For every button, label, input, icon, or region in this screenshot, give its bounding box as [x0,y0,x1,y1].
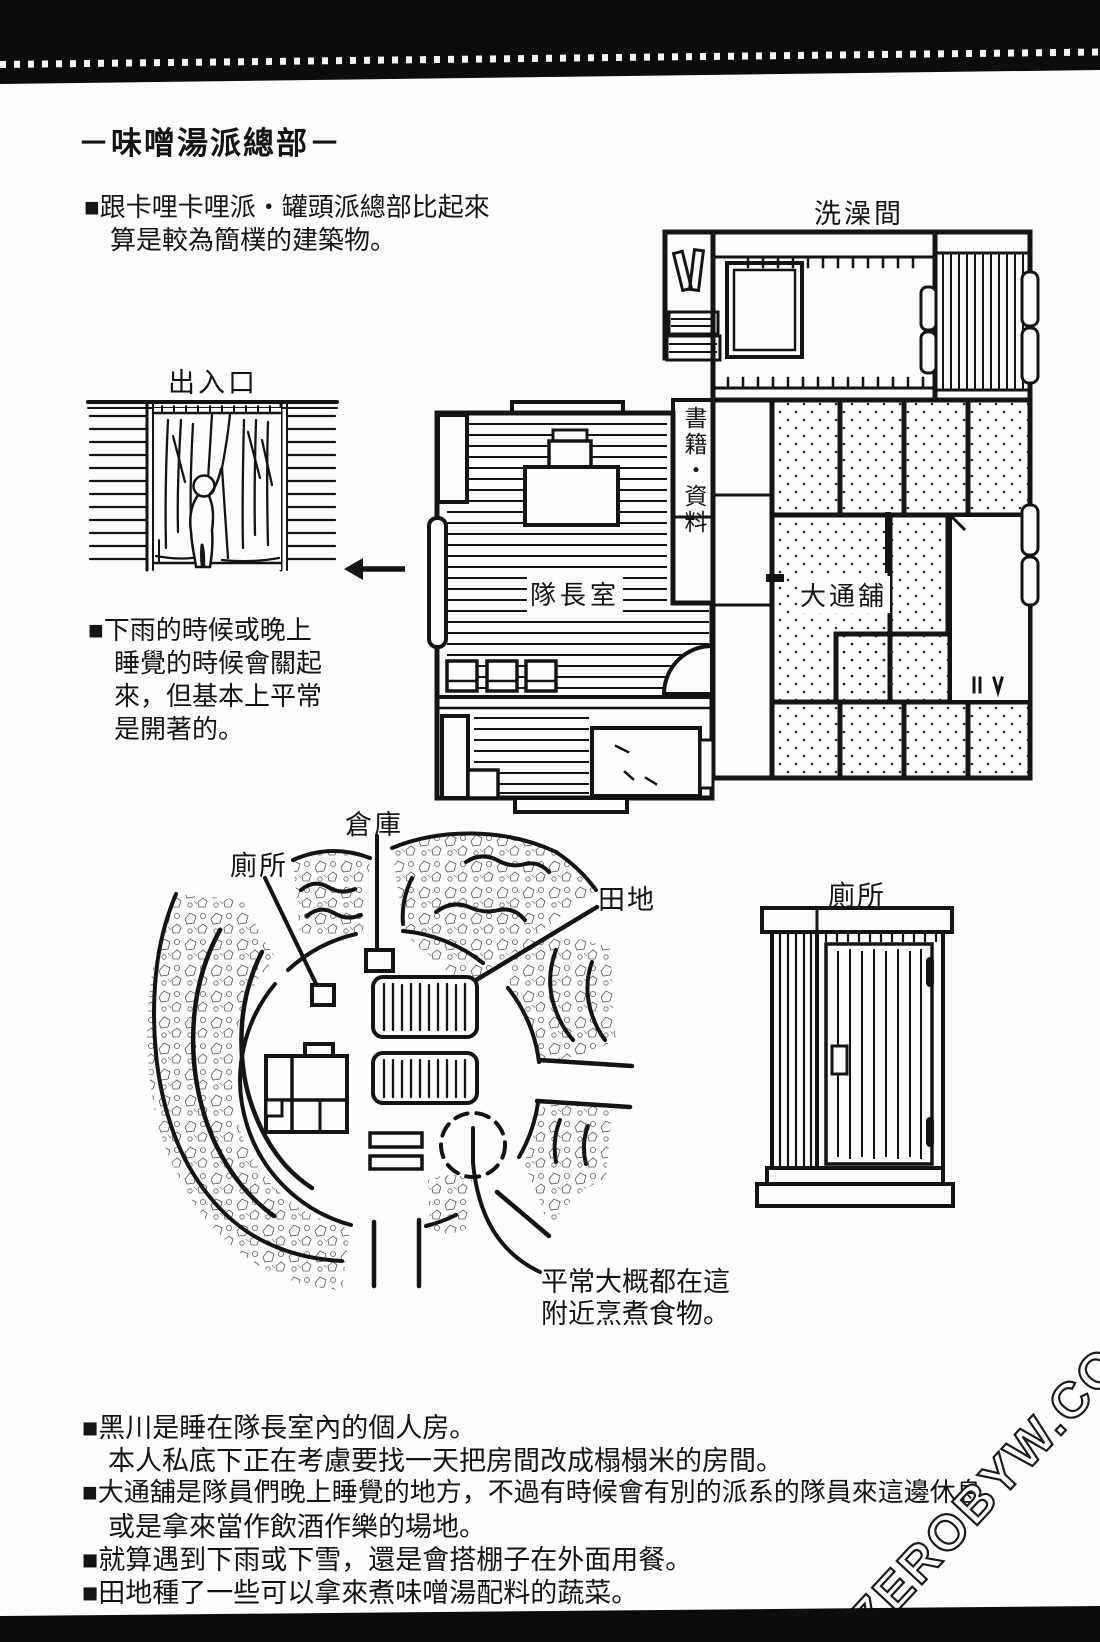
watermark-text: ZEROBYW.COM [839,1303,1100,1642]
top-border-band [0,0,1100,84]
stitch-marks [0,49,1100,68]
watermark-layer: ZEROBYW.COM [0,0,1100,1642]
manga-extra-page: －味噌湯派總部－ ■跟卡哩卡哩派・罐頭派總部比起來 算是較為簡樸的建築物。 洗澡… [0,0,1100,1642]
